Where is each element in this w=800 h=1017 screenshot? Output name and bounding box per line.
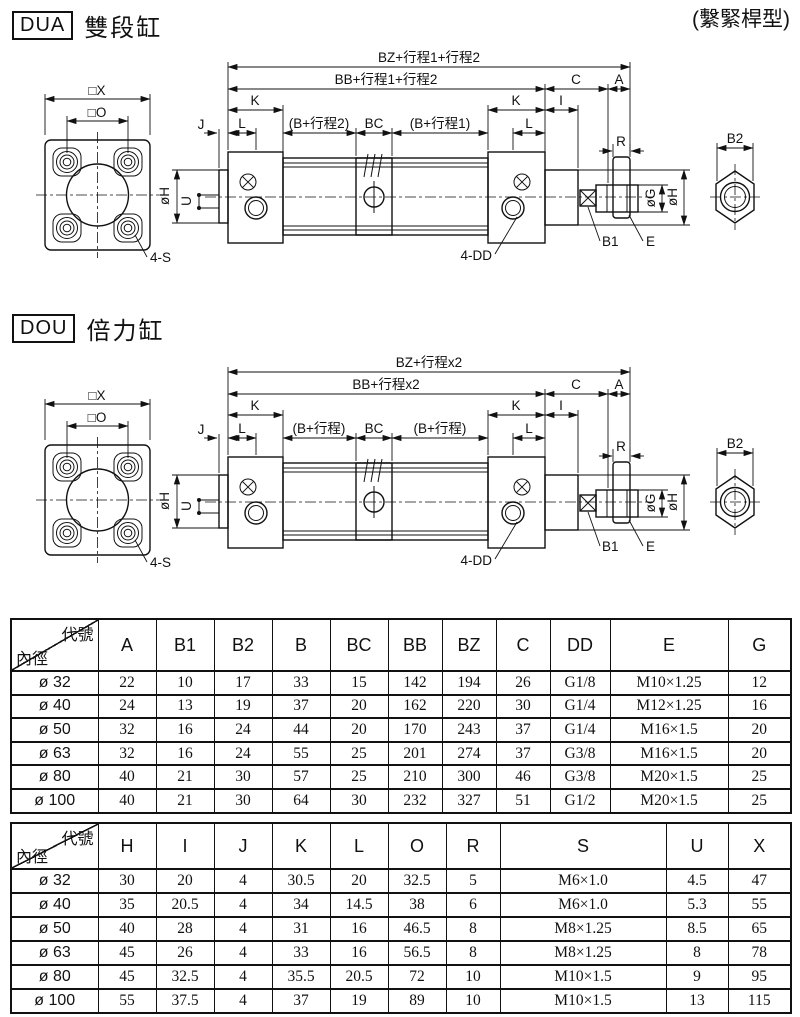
table-cell: M20×1.5 — [610, 765, 728, 789]
table-cell: 45 — [98, 965, 156, 989]
table-cell: 30.5 — [272, 869, 330, 893]
label-e: E — [646, 539, 655, 554]
dim-label-k-right: K — [511, 398, 520, 413]
bore-cell: ø 63 — [11, 742, 98, 766]
column-header-b2: B2 — [214, 619, 272, 671]
dim-label-bb: BB+行程x2 — [352, 377, 419, 392]
table-cell: 32.5 — [156, 965, 214, 989]
bore-cell: ø 63 — [11, 941, 98, 965]
table-cell: 20 — [728, 742, 791, 766]
section-title: 倍力缸 — [86, 311, 164, 346]
table-cell: 51 — [496, 789, 550, 813]
table-cell: 4 — [214, 989, 272, 1013]
dim-label-b-stroke-left: (B+行程2) — [289, 116, 349, 131]
label-4-s: 4-S — [150, 250, 171, 265]
column-header-bb: BB — [388, 619, 442, 671]
cylinder-side-view — [197, 152, 652, 243]
label-e: E — [646, 234, 655, 249]
table-cell: 4 — [214, 965, 272, 989]
dim-label-oh-left: øH — [157, 187, 172, 205]
table-cell: 13 — [666, 989, 728, 1013]
dua-diagram-area: □X □O 4-S — [0, 45, 800, 305]
bore-cell: ø 50 — [11, 718, 98, 742]
section-title: 雙段缸 — [84, 8, 162, 43]
label-4-dd: 4-DD — [460, 248, 492, 263]
dim-label-u: U — [179, 501, 194, 511]
table-cell: 5.3 — [666, 893, 728, 917]
table-cell: M16×1.5 — [610, 742, 728, 766]
table-cell: 30 — [214, 789, 272, 813]
dim-label-l-left: L — [238, 421, 246, 436]
table-cell: M10×1.5 — [500, 989, 666, 1013]
dim-label-og: øG — [643, 494, 658, 513]
dim-label-oh-right: øH — [665, 188, 680, 206]
table-cell: 162 — [388, 695, 442, 719]
table-cell: 10 — [156, 671, 214, 695]
table-cell: 8.5 — [666, 917, 728, 941]
table-cell: 19 — [214, 695, 272, 719]
table-cell: 300 — [442, 765, 496, 789]
table-cell: 25 — [728, 765, 791, 789]
column-header-i: I — [156, 823, 214, 869]
table-cell: 37 — [496, 742, 550, 766]
table-cell: 220 — [442, 695, 496, 719]
rod-nut-end-view: B2 — [710, 131, 760, 230]
table-row: ø 100402130643023232751G1/2M20×1.525 — [11, 789, 791, 813]
table-corner-cell: 代號內徑 — [11, 823, 98, 869]
bore-cell: ø 80 — [11, 965, 98, 989]
table-cell: 20.5 — [330, 965, 388, 989]
table-cell: 201 — [388, 742, 442, 766]
dim-label-og: øG — [643, 189, 658, 208]
dim-label-b-stroke-right: (B+行程1) — [410, 116, 470, 131]
table-cell: 210 — [388, 765, 442, 789]
table-cell: 4 — [214, 941, 272, 965]
table-cell: 10 — [446, 989, 500, 1013]
table-cell: 4 — [214, 917, 272, 941]
table-cell: M10×1.25 — [610, 671, 728, 695]
table-cell: G3/8 — [550, 742, 610, 766]
table-cell: 56.5 — [388, 941, 446, 965]
rod-type-note: (繫緊桿型) — [692, 3, 790, 33]
table-cell: M8×1.25 — [500, 917, 666, 941]
table-cell: 33 — [272, 671, 330, 695]
table-cell: 21 — [156, 765, 214, 789]
column-header-dd: DD — [550, 619, 610, 671]
dim-label-l-left: L — [238, 116, 246, 131]
table-cell: 327 — [442, 789, 496, 813]
bore-cell: ø 80 — [11, 765, 98, 789]
table-cell: 20 — [330, 718, 388, 742]
dim-label-oh-right: øH — [665, 493, 680, 511]
table-cell: 37 — [272, 989, 330, 1013]
table-header-row: 代號內徑AB1B2BBCBBBZCDDEG — [11, 619, 791, 671]
table-cell: 8 — [446, 941, 500, 965]
column-header-b1: B1 — [156, 619, 214, 671]
table-cell: 55 — [272, 742, 330, 766]
label-b1: B1 — [602, 234, 619, 249]
table-cell: 47 — [728, 869, 791, 893]
table-cell: 35 — [98, 893, 156, 917]
dim-label-b-stroke-left: (B+行程) — [293, 421, 346, 436]
table-cell: 25 — [330, 742, 388, 766]
cylinder-technical-drawing: □X □O 4-S — [0, 45, 800, 305]
table-cell: 115 — [728, 989, 791, 1013]
label-b1: B1 — [602, 539, 619, 554]
dimension-table-a-to-g: 代號內徑AB1B2BBCBBBZCDDEGø 32221017331514219… — [10, 618, 792, 814]
dim-label-j: J — [198, 117, 205, 132]
table-cell: 170 — [388, 718, 442, 742]
column-header-u: U — [666, 823, 728, 869]
table-cell: G3/8 — [550, 765, 610, 789]
dim-label-bc: BC — [365, 421, 384, 436]
table-cell: 10 — [446, 965, 500, 989]
table-cell: 16 — [330, 941, 388, 965]
table-cell: 89 — [388, 989, 446, 1013]
model-code-badge: DOU — [12, 314, 75, 343]
table-cell: 14.5 — [330, 893, 388, 917]
dim-label-square-o: □O — [88, 105, 107, 120]
table-cell: 20 — [156, 869, 214, 893]
rod-nut-end-view: B2 — [710, 436, 760, 535]
dim-label-a: A — [614, 72, 623, 87]
dim-label-i: I — [559, 93, 563, 108]
table-cell: G1/2 — [550, 789, 610, 813]
bore-cell: ø 40 — [11, 695, 98, 719]
corner-label-code: 代號 — [61, 825, 93, 849]
table-cell: 65 — [728, 917, 791, 941]
table-cell: 274 — [442, 742, 496, 766]
label-4-dd: 4-DD — [460, 553, 492, 568]
table-row: ø 323020430.52032.55M6×1.04.547 — [11, 869, 791, 893]
table-row: ø 32221017331514219426G1/8M10×1.2512 — [11, 671, 791, 695]
table-cell: 20.5 — [156, 893, 214, 917]
dim-label-bc: BC — [365, 116, 384, 131]
table-cell: 19 — [330, 989, 388, 1013]
table-cell: 30 — [98, 869, 156, 893]
table-cell: 26 — [496, 671, 550, 695]
table-header-row: 代號內徑HIJKLORSUX — [11, 823, 791, 869]
table-cell: 46.5 — [388, 917, 446, 941]
section-header-dou: DOU 倍力缸 — [12, 311, 164, 346]
dim-label-u: U — [179, 196, 194, 206]
table-cell: 35.5 — [272, 965, 330, 989]
table-cell: 25 — [728, 789, 791, 813]
column-header-j: J — [214, 823, 272, 869]
table-cell: 20 — [728, 718, 791, 742]
table-cell: M6×1.0 — [500, 869, 666, 893]
table-cell: 40 — [98, 917, 156, 941]
dim-label-square-o: □O — [88, 410, 107, 425]
table-cell: 16 — [728, 695, 791, 719]
bore-cell: ø 40 — [11, 893, 98, 917]
cylinder-technical-drawing: □X □O 4-S — [0, 350, 800, 610]
table-cell: 4 — [214, 869, 272, 893]
table-cell: 31 — [272, 917, 330, 941]
table-row: ø 80402130572521030046G3/8M20×1.525 — [11, 765, 791, 789]
column-header-a: A — [98, 619, 156, 671]
section-header-dua: DUA 雙段缸 — [12, 8, 162, 43]
table-cell: 28 — [156, 917, 214, 941]
table-cell: 55 — [98, 989, 156, 1013]
dim-label-j: J — [198, 422, 205, 437]
table-cell: 4.5 — [666, 869, 728, 893]
dim-label-square-x: □X — [88, 83, 105, 98]
table-cell: 64 — [272, 789, 330, 813]
table-cell: M20×1.5 — [610, 789, 728, 813]
table-cell: 4 — [214, 893, 272, 917]
column-header-c: C — [496, 619, 550, 671]
flange-end-view — [36, 132, 159, 258]
table-cell: 40 — [98, 789, 156, 813]
dou-diagram-area: □X □O 4-S — [0, 350, 800, 610]
table-cell: 13 — [156, 695, 214, 719]
dim-label-k-left: K — [250, 398, 259, 413]
table-cell: 26 — [156, 941, 214, 965]
table-cell: M8×1.25 — [500, 941, 666, 965]
side-view-dimensions: BZ+行程x2 BB+行程x2 C A K K I — [157, 355, 690, 568]
table-cell: 16 — [156, 718, 214, 742]
table-row: ø 5040284311646.58M8×1.258.565 — [11, 917, 791, 941]
table-cell: M6×1.0 — [500, 893, 666, 917]
table-cell: G1/8 — [550, 671, 610, 695]
dim-label-bb: BB+行程1+行程2 — [335, 72, 438, 87]
table-row: ø 63321624552520127437G3/8M16×1.520 — [11, 742, 791, 766]
table-cell: 142 — [388, 671, 442, 695]
table-cell: 22 — [98, 671, 156, 695]
dim-label-k-right: K — [511, 93, 520, 108]
model-code-badge: DUA — [12, 11, 73, 40]
dim-label-b2: B2 — [727, 131, 744, 146]
table-row: ø 50321624442017024337G1/4M16×1.520 — [11, 718, 791, 742]
table-row: ø 403520.543414.5386M6×1.05.355 — [11, 893, 791, 917]
table-cell: 15 — [330, 671, 388, 695]
table-cell: 55 — [728, 893, 791, 917]
dim-label-r: R — [616, 134, 626, 149]
table-row: ø 6345264331656.58M8×1.25878 — [11, 941, 791, 965]
column-header-g: G — [728, 619, 791, 671]
table-cell: 24 — [98, 695, 156, 719]
table-cell: 37 — [272, 695, 330, 719]
table-cell: 243 — [442, 718, 496, 742]
dim-label-a: A — [614, 377, 623, 392]
dim-label-bz: BZ+行程1+行程2 — [378, 50, 480, 65]
dim-label-c: C — [571, 72, 581, 87]
table-row: ø 804532.5435.520.57210M10×1.5995 — [11, 965, 791, 989]
table-cell: 30 — [496, 695, 550, 719]
catalog-page: DUA 雙段缸 (繫緊桿型) □X — [0, 0, 800, 1017]
table-row: ø 1005537.5437198910M10×1.513115 — [11, 989, 791, 1013]
table-cell: 24 — [214, 718, 272, 742]
dim-label-k-left: K — [250, 93, 259, 108]
table-cell: 33 — [272, 941, 330, 965]
table-cell: M10×1.5 — [500, 965, 666, 989]
corner-label-bore: 內徑 — [16, 645, 48, 669]
table-cell: 8 — [446, 917, 500, 941]
cylinder-side-view — [197, 457, 652, 548]
dim-label-b2: B2 — [727, 436, 744, 451]
column-header-bc: BC — [330, 619, 388, 671]
column-header-h: H — [98, 823, 156, 869]
table-cell: 30 — [214, 765, 272, 789]
flange-end-view — [36, 437, 159, 563]
table-cell: 37 — [496, 718, 550, 742]
dim-label-r: R — [616, 439, 626, 454]
table-cell: 78 — [728, 941, 791, 965]
bore-cell: ø 100 — [11, 789, 98, 813]
table-cell: 24 — [214, 742, 272, 766]
dim-label-l-right: L — [525, 421, 533, 436]
dim-label-oh-left: øH — [157, 492, 172, 510]
table-cell: 32 — [98, 718, 156, 742]
table-cell: 25 — [330, 765, 388, 789]
column-header-e: E — [610, 619, 728, 671]
bore-cell: ø 100 — [11, 989, 98, 1013]
column-header-l: L — [330, 823, 388, 869]
bore-cell: ø 32 — [11, 671, 98, 695]
column-header-b: B — [272, 619, 330, 671]
column-header-r: R — [446, 823, 500, 869]
table-cell: 20 — [330, 695, 388, 719]
table-cell: 45 — [98, 941, 156, 965]
column-header-o: O — [388, 823, 446, 869]
bore-cell: ø 50 — [11, 917, 98, 941]
table-cell: 5 — [446, 869, 500, 893]
dim-label-l-right: L — [525, 116, 533, 131]
bore-cell: ø 32 — [11, 869, 98, 893]
side-view-dimensions: BZ+行程1+行程2 BB+行程1+行程2 C A K K I — [157, 50, 690, 263]
table-cell: 12 — [728, 671, 791, 695]
table-cell: 38 — [388, 893, 446, 917]
corner-label-code: 代號 — [61, 621, 93, 645]
table-cell: 20 — [330, 869, 388, 893]
table-cell: 21 — [156, 789, 214, 813]
table-cell: M16×1.5 — [610, 718, 728, 742]
column-header-bz: BZ — [442, 619, 496, 671]
table-cell: 34 — [272, 893, 330, 917]
table-cell: G1/4 — [550, 718, 610, 742]
table-cell: M12×1.25 — [610, 695, 728, 719]
table-cell: 8 — [666, 941, 728, 965]
column-header-s: S — [500, 823, 666, 869]
table-cell: G1/4 — [550, 695, 610, 719]
table-cell: 72 — [388, 965, 446, 989]
label-4-s: 4-S — [150, 555, 171, 570]
table-row: ø 40241319372016222030G1/4M12×1.2516 — [11, 695, 791, 719]
table-cell: 9 — [666, 965, 728, 989]
table-cell: 17 — [214, 671, 272, 695]
table-cell: 44 — [272, 718, 330, 742]
dimension-table-h-to-x: 代號內徑HIJKLORSUXø 323020430.52032.55M6×1.0… — [10, 822, 792, 1014]
corner-label-bore: 內徑 — [16, 843, 48, 867]
table-cell: 40 — [98, 765, 156, 789]
table-cell: 16 — [330, 917, 388, 941]
table-cell: 194 — [442, 671, 496, 695]
dim-label-b-stroke-right: (B+行程) — [414, 421, 467, 436]
column-header-x: X — [728, 823, 791, 869]
table-cell: 32.5 — [388, 869, 446, 893]
table-cell: 95 — [728, 965, 791, 989]
table-cell: 30 — [330, 789, 388, 813]
dim-label-c: C — [571, 377, 581, 392]
table-corner-cell: 代號內徑 — [11, 619, 98, 671]
table-cell: 6 — [446, 893, 500, 917]
table-cell: 232 — [388, 789, 442, 813]
table-cell: 32 — [98, 742, 156, 766]
table-cell: 57 — [272, 765, 330, 789]
dim-label-bz: BZ+行程x2 — [396, 355, 462, 370]
column-header-k: K — [272, 823, 330, 869]
dim-label-square-x: □X — [88, 388, 105, 403]
table-cell: 37.5 — [156, 989, 214, 1013]
dim-label-i: I — [559, 398, 563, 413]
table-cell: 16 — [156, 742, 214, 766]
table-cell: 46 — [496, 765, 550, 789]
